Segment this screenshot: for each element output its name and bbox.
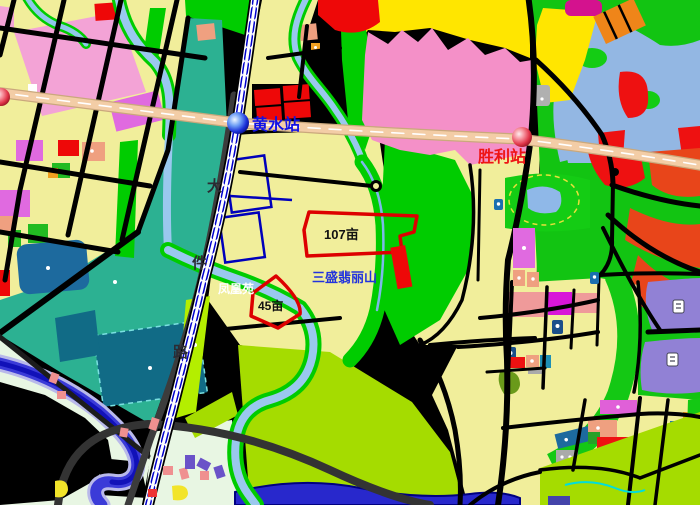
- svg-text:大: 大: [207, 177, 222, 195]
- svg-text:路: 路: [173, 343, 189, 361]
- parcel-label-45mu: 45亩: [258, 298, 283, 313]
- station-label-shengli: 胜利站: [478, 147, 526, 166]
- place-label-sansheng: 三盛翡丽山: [312, 270, 377, 285]
- school-icon: [667, 353, 678, 366]
- station-label-huangshui: 黄水站: [252, 115, 300, 134]
- parcel-magenta: [565, 0, 602, 16]
- parcel-magenta: [548, 292, 572, 315]
- zoning-map: 黄水站 胜利站 107亩 45亩 三盛翡丽山 凤凰苑 大 件 路: [0, 0, 700, 505]
- parcel-label-107mu: 107亩: [324, 227, 359, 242]
- road-end-marker: [372, 182, 381, 191]
- zoning-map-viewport[interactable]: 黄水站 胜利站 107亩 45亩 三盛翡丽山 凤凰苑 大 件 路: [0, 0, 700, 505]
- school-icon: [673, 300, 684, 313]
- lake: [527, 186, 561, 213]
- place-label-fenghuangyuan: 凤凰苑: [218, 281, 254, 296]
- station-marker-shengli[interactable]: [512, 127, 532, 147]
- station-marker-huangshui[interactable]: [227, 112, 249, 134]
- svg-text:件: 件: [192, 254, 207, 272]
